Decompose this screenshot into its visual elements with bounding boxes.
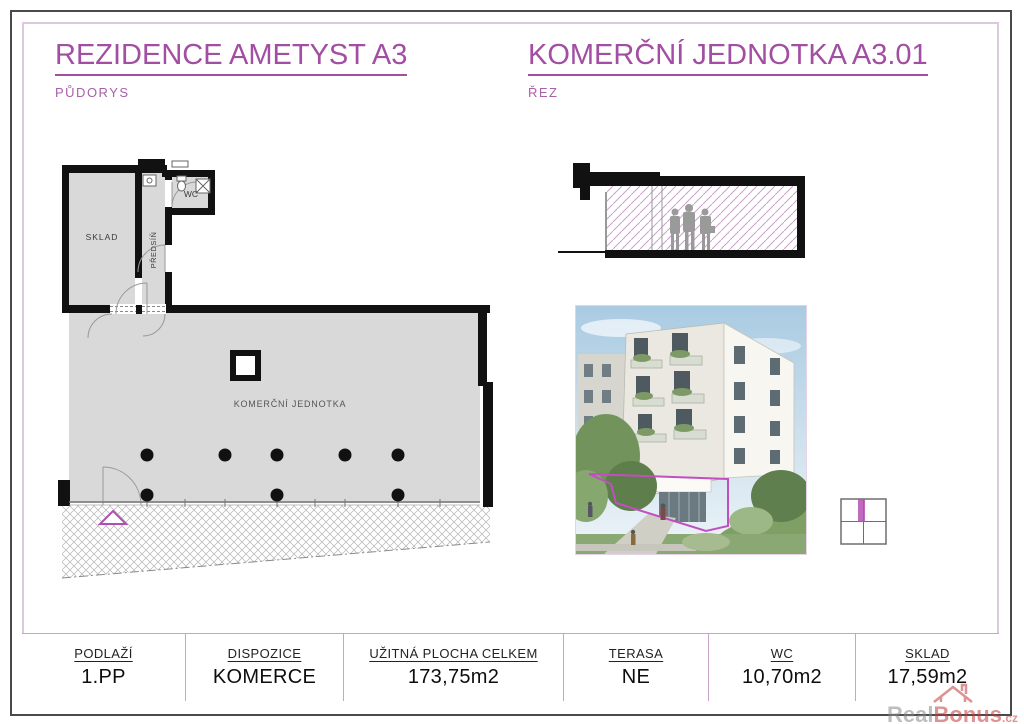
column-value: 173,75m2: [408, 666, 499, 689]
room-label-main: KOMERČNÍ JEDNOTKA: [234, 399, 347, 409]
right-title-block: KOMERČNÍ JEDNOTKA A3.01 ŘEZ: [528, 40, 928, 100]
table-cell-dispozice: DISPOZICE KOMERCE: [185, 634, 343, 701]
plan-subtitle: PŮDORYS: [55, 85, 407, 100]
column-header: SKLAD: [905, 646, 950, 661]
watermark-cz: .cz: [1002, 711, 1018, 724]
column-header: WC: [771, 646, 793, 661]
summary-table: PODLAŽÍ 1.PP DISPOZICE KOMERCE UŽITNÁ PL…: [22, 633, 999, 701]
column-value: 1.PP: [81, 666, 126, 689]
column-header: UŽITNÁ PLOCHA CELKEM: [369, 646, 537, 661]
table-cell-podlazi: PODLAŽÍ 1.PP: [22, 634, 185, 701]
watermark-real: Real: [887, 702, 933, 724]
left-title-block: REZIDENCE AMETYST A3 PŮDORYS: [55, 40, 407, 100]
section-drawing: [550, 150, 810, 265]
house-roof-icon: [931, 683, 975, 704]
floorplan-sheet: REZIDENCE AMETYST A3 PŮDORYS KOMERČNÍ JE…: [0, 0, 1024, 724]
table-cell-plocha: UŽITNÁ PLOCHA CELKEM 173,75m2: [343, 634, 563, 701]
column-header: PODLAŽÍ: [74, 646, 132, 661]
floor-plan-drawing: SKLAD PŘEDSÍŇ WC KOMERČNÍ JEDNOTKA: [50, 150, 500, 590]
residence-title: REZIDENCE AMETYST A3: [55, 40, 407, 76]
room-label-predsin: PŘEDSÍŇ: [149, 232, 158, 269]
table-cell-terasa: TERASA NE: [563, 634, 708, 701]
building-photo: [575, 305, 807, 555]
room-label-wc: WC: [184, 189, 198, 199]
realbonus-watermark: RealBonus.cz: [887, 683, 1018, 724]
room-label-sklad: SKLAD: [86, 232, 119, 242]
watermark-bonus: Bonus: [934, 702, 1002, 724]
column-value: KOMERCE: [213, 666, 316, 689]
column-value: NE: [622, 666, 650, 689]
table-cell-wc: WC 10,70m2: [708, 634, 855, 701]
column-header: DISPOZICE: [228, 646, 302, 661]
column-value: 10,70m2: [742, 666, 822, 689]
unit-title: KOMERČNÍ JEDNOTKA A3.01: [528, 40, 928, 76]
keyplan-locator-icon: [838, 490, 890, 547]
section-subtitle: ŘEZ: [528, 85, 928, 100]
column-header: TERASA: [609, 646, 663, 661]
